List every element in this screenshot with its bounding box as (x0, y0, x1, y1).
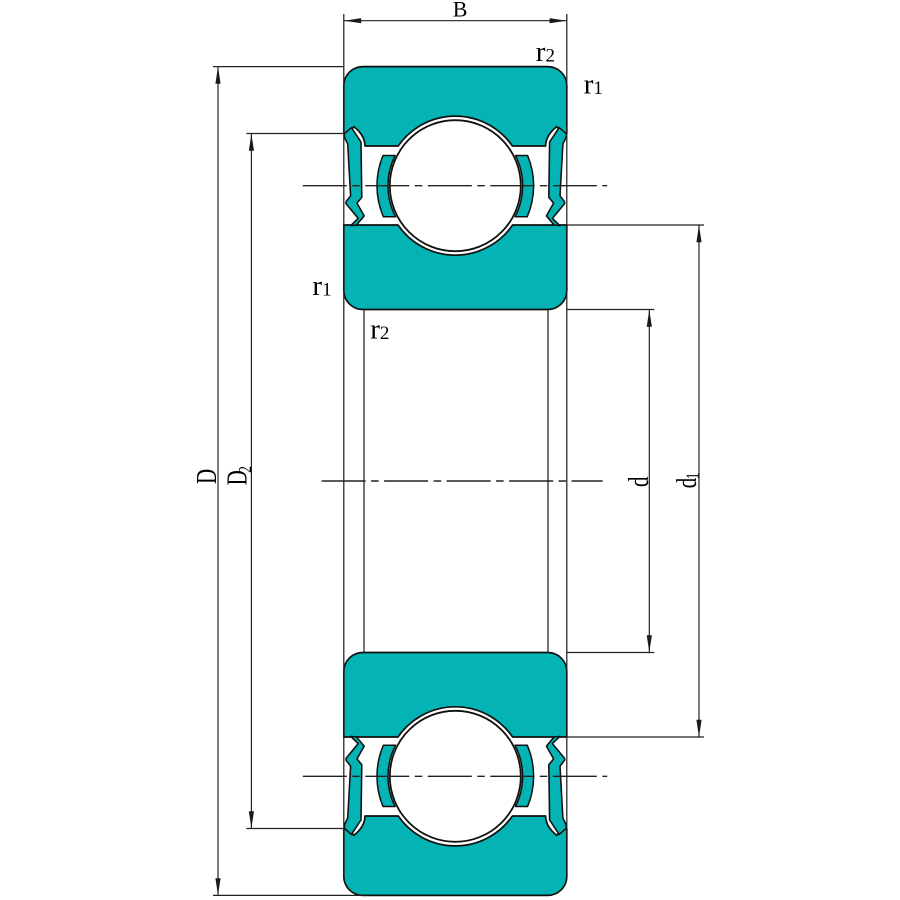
svg-text:B: B (453, 0, 468, 22)
svg-text:D: D (192, 469, 223, 484)
svg-text:d: d (624, 476, 655, 487)
